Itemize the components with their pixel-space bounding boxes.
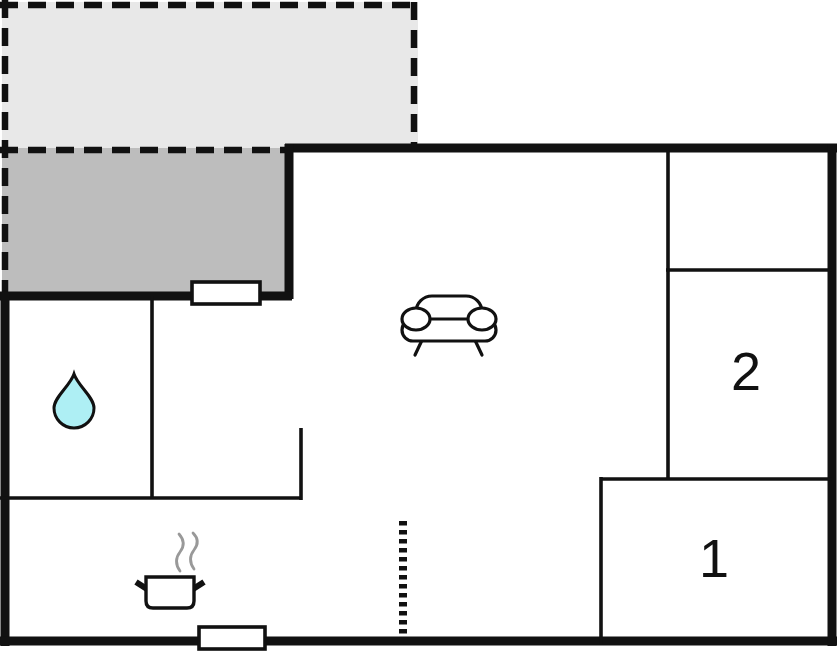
terrace-area (2, 2, 418, 148)
sofa-icon (402, 296, 496, 355)
water-drop-icon (54, 374, 94, 428)
steam-icon (177, 534, 184, 571)
sofa-armrest-right (468, 308, 496, 330)
window-bottom (199, 627, 265, 649)
room-2-label: 2 (731, 341, 761, 401)
patio-area (2, 148, 287, 295)
sofa-armrest-left (402, 308, 430, 330)
window-top (192, 282, 260, 304)
room-1-label: 1 (699, 528, 729, 588)
floor-plan: 2 1 (0, 0, 837, 652)
floor-plan-page: 2 1 (0, 0, 837, 652)
cooking-pot-icon (136, 533, 204, 608)
steam-icon (191, 533, 198, 569)
pot-body (146, 577, 194, 608)
